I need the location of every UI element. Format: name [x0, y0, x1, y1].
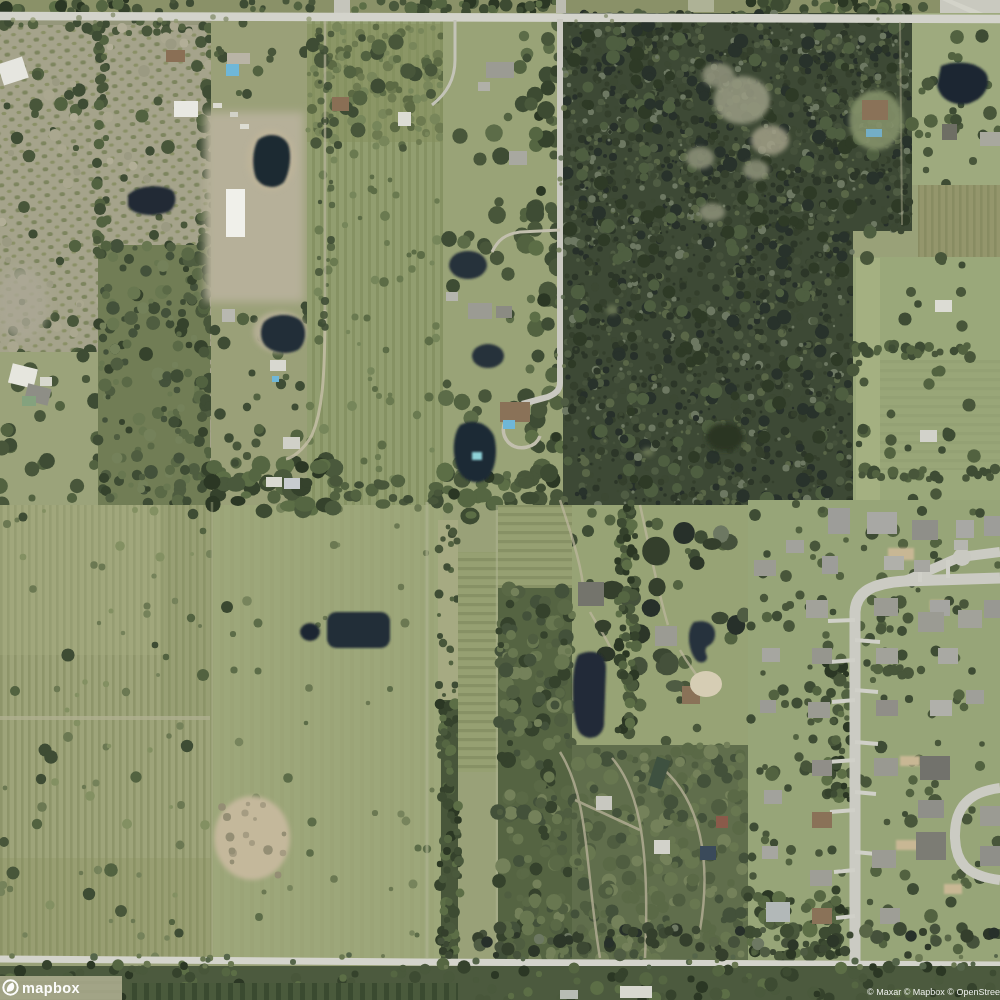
- svg-text:mapbox: mapbox: [22, 980, 80, 996]
- svg-text:© Maxar © Mapbox © OpenStreetM: © Maxar © Mapbox © OpenStreetMap: [867, 987, 1000, 997]
